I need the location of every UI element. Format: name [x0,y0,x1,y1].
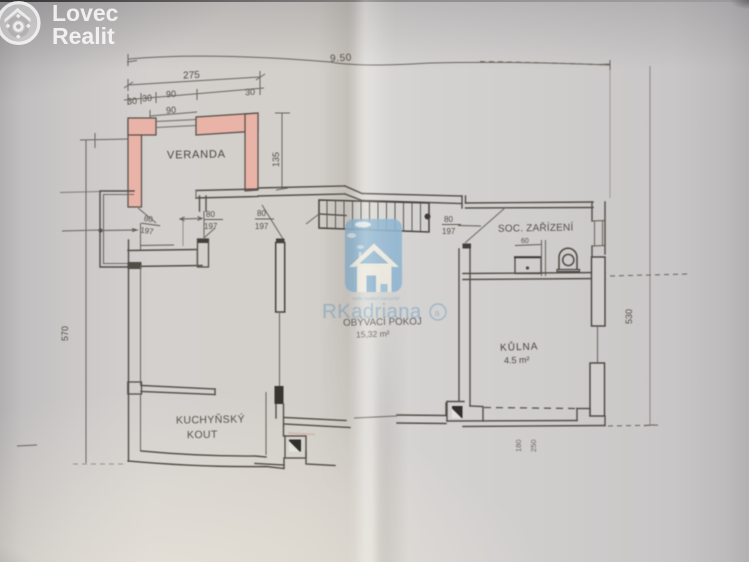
svg-text:30: 30 [245,87,256,98]
svg-text:80: 80 [206,210,215,219]
svg-text:KUCHYŇSKÝ: KUCHYŇSKÝ [176,412,245,426]
svg-text:80: 80 [444,215,453,224]
svg-text:180: 180 [514,439,523,452]
svg-text:KŮLNA: KŮLNA [500,339,539,353]
svg-text:250: 250 [529,439,538,452]
svg-text:30: 30 [127,96,138,107]
svg-text:197: 197 [204,222,218,231]
svg-text:4.5 m²: 4.5 m² [504,355,530,366]
svg-text:60: 60 [521,238,529,245]
svg-text:80: 80 [143,214,154,224]
svg-text:530: 530 [624,309,634,324]
svg-text:90: 90 [166,89,177,100]
svg-text:VERANDA: VERANDA [167,148,226,161]
svg-text:KOUT: KOUT [187,429,218,442]
svg-text:15,32 m²: 15,32 m² [356,328,390,339]
svg-text:135: 135 [271,152,281,167]
svg-text:570: 570 [60,326,70,341]
svg-text:30: 30 [142,93,153,104]
svg-text:RKadriana: RKadriana [322,300,422,323]
svg-text:Realit: Realit [52,23,115,49]
svg-text:a: a [435,308,440,318]
svg-text:9.50: 9.50 [330,52,352,64]
svg-text:275: 275 [183,70,201,82]
svg-text:197: 197 [255,222,269,231]
svg-text:90: 90 [166,105,177,116]
svg-text:197: 197 [140,226,155,237]
svg-text:80: 80 [257,209,266,218]
svg-text:SOC. ZAŘÍZENÍ: SOC. ZAŘÍZENÍ [498,220,574,234]
svg-text:197: 197 [442,227,456,236]
